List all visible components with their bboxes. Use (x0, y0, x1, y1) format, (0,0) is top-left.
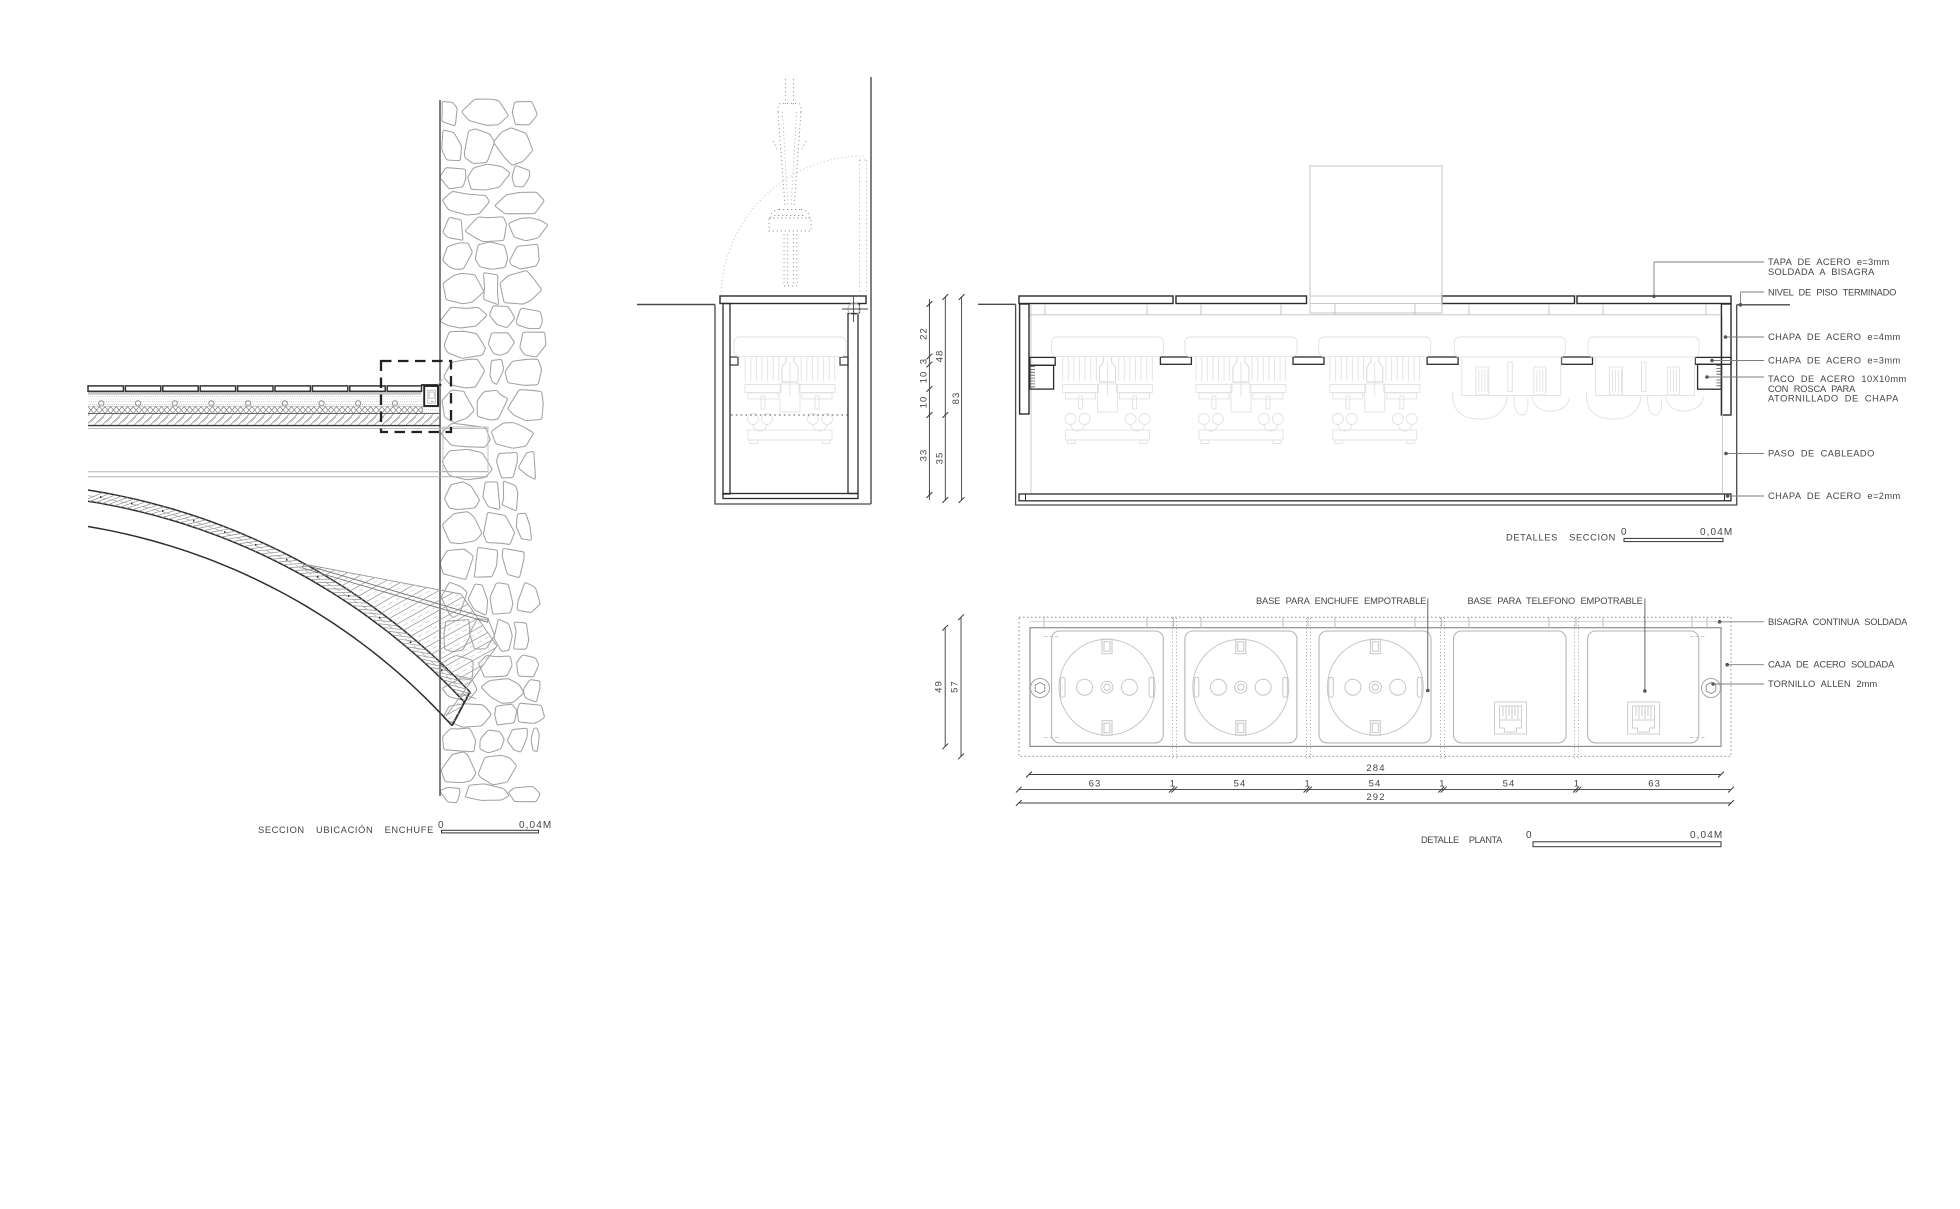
svg-text:1: 1 (1439, 779, 1445, 790)
svg-text:1: 1 (1305, 779, 1311, 790)
svg-text:TAPA DE ACERO e=3mm: TAPA DE ACERO e=3mm (1768, 257, 1890, 267)
svg-text:54: 54 (1369, 779, 1382, 790)
svg-text:0,04M: 0,04M (1690, 830, 1723, 841)
svg-text:BASE PARA ENCHUFE EMPOTRABLE: BASE PARA ENCHUFE EMPOTRABLE (1256, 596, 1427, 606)
svg-text:0,04M: 0,04M (519, 820, 552, 831)
svg-text:35: 35 (935, 452, 946, 465)
svg-text:49: 49 (934, 680, 945, 693)
svg-text:CHAPA DE ACERO e=2mm: CHAPA DE ACERO e=2mm (1768, 491, 1901, 501)
svg-text:33: 33 (919, 449, 930, 462)
svg-text:0: 0 (1621, 527, 1628, 538)
svg-text:0: 0 (438, 820, 445, 831)
svg-text:PASO DE CABLEADO: PASO DE CABLEADO (1768, 449, 1875, 459)
svg-text:CHAPA DE ACERO e=3mm: CHAPA DE ACERO e=3mm (1768, 356, 1901, 366)
svg-text:DETALLES SECCION: DETALLES SECCION (1506, 533, 1616, 543)
svg-text:CHAPA DE ACERO e=4mm: CHAPA DE ACERO e=4mm (1768, 332, 1901, 342)
svg-text:54: 54 (1234, 779, 1247, 790)
svg-text:284: 284 (1366, 763, 1385, 774)
svg-text:57: 57 (949, 680, 960, 693)
svg-text:DETALLE PLANTA: DETALLE PLANTA (1421, 835, 1503, 845)
svg-text:10: 10 (919, 396, 930, 409)
svg-text:54: 54 (1503, 779, 1516, 790)
svg-text:22: 22 (919, 327, 930, 340)
svg-text:292: 292 (1366, 792, 1385, 803)
svg-text:83: 83 (951, 392, 962, 405)
svg-text:1: 1 (1170, 779, 1176, 790)
svg-text:TACO DE ACERO 10X10mm: TACO DE ACERO 10X10mm (1768, 374, 1907, 384)
svg-text:48: 48 (935, 350, 946, 363)
svg-text:ATORNILLADO DE CHAPA: ATORNILLADO DE CHAPA (1768, 394, 1899, 404)
svg-text:SECCION UBICACIÓN ENCHUFE: SECCION UBICACIÓN ENCHUFE (258, 825, 434, 835)
svg-text:TORNILLO ALLEN 2mm: TORNILLO ALLEN 2mm (1768, 679, 1878, 689)
svg-text:10: 10 (919, 371, 930, 384)
svg-text:SOLDADA A BISAGRA: SOLDADA A BISAGRA (1768, 267, 1875, 277)
svg-text:BISAGRA CONTINUA SOLDADA: BISAGRA CONTINUA SOLDADA (1768, 617, 1908, 627)
svg-text:63: 63 (1089, 779, 1102, 790)
svg-text:1: 1 (1574, 779, 1580, 790)
svg-text:0: 0 (1526, 830, 1533, 841)
svg-text:NIVEL DE PISO TERMINADO: NIVEL DE PISO TERMINADO (1768, 288, 1897, 298)
svg-text:CON ROSCA PARA: CON ROSCA PARA (1768, 384, 1856, 394)
svg-text:BASE PARA TELEFONO EMPOTRABLE: BASE PARA TELEFONO EMPOTRABLE (1468, 596, 1644, 606)
svg-text:63: 63 (1648, 779, 1661, 790)
svg-text:0,04M: 0,04M (1700, 527, 1733, 538)
svg-text:CAJA DE ACERO SOLDADA: CAJA DE ACERO SOLDADA (1768, 660, 1895, 670)
svg-text:3: 3 (919, 358, 930, 364)
